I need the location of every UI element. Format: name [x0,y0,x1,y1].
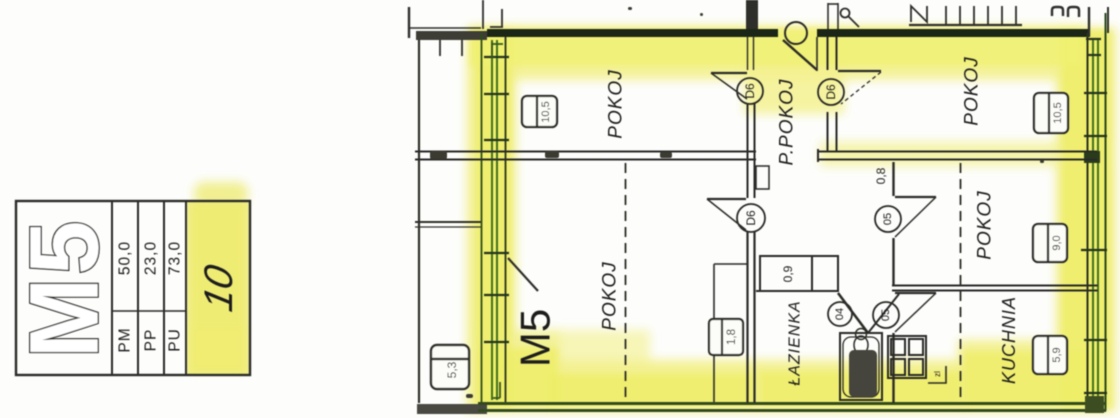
svg-text:D6: D6 [743,83,757,99]
svg-text:PU: PU [167,328,184,352]
svg-text:D6: D6 [744,210,758,226]
svg-text:0,9: 0,9 [781,265,795,282]
svg-text:M5: M5 [10,218,119,359]
svg-text:5,9: 5,9 [1051,347,1063,362]
svg-text:D6: D6 [824,84,838,100]
svg-text:M5: M5 [512,309,559,367]
svg-text:73,0: 73,0 [167,241,184,275]
svg-text:POKOJ: POKOJ [962,56,983,125]
svg-text:ŁAZIENKA: ŁAZIENKA [787,300,804,385]
svg-text:POKOJ: POKOJ [606,69,627,138]
svg-text:9,0: 9,0 [1051,235,1063,250]
svg-text:PM: PM [117,327,134,352]
svg-text:POKOJ: POKOJ [600,261,621,330]
svg-text:05: 05 [880,309,892,321]
svg-text:KUCHNIA: KUCHNIA [999,296,1019,384]
svg-text:PP: PP [143,329,160,352]
svg-text:1,8: 1,8 [726,329,738,345]
svg-text:10,5: 10,5 [540,101,552,122]
svg-text:0,8: 0,8 [874,167,888,184]
svg-text:23,0: 23,0 [143,241,160,275]
svg-text:5,3: 5,3 [445,361,459,378]
svg-text:10,5: 10,5 [1052,102,1064,123]
svg-text:04: 04 [834,308,846,320]
svg-text:05: 05 [882,213,894,225]
svg-text:50,0: 50,0 [117,241,134,275]
svg-text:zl: zl [933,371,942,377]
svg-text:POKOJ: POKOJ [975,190,996,259]
svg-text:P.POKOJ: P.POKOJ [777,79,798,166]
